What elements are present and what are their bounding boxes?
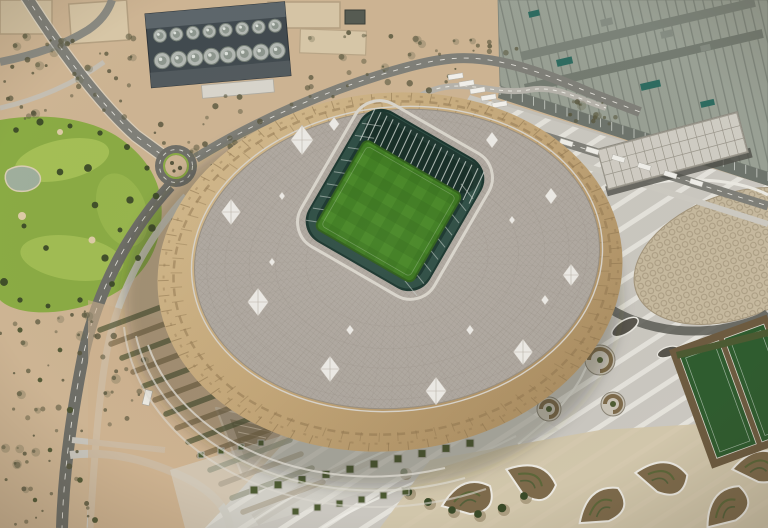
aerial-photo — [0, 0, 768, 528]
aerial-photo-frame — [0, 0, 768, 528]
vignette-overlay — [0, 0, 768, 528]
